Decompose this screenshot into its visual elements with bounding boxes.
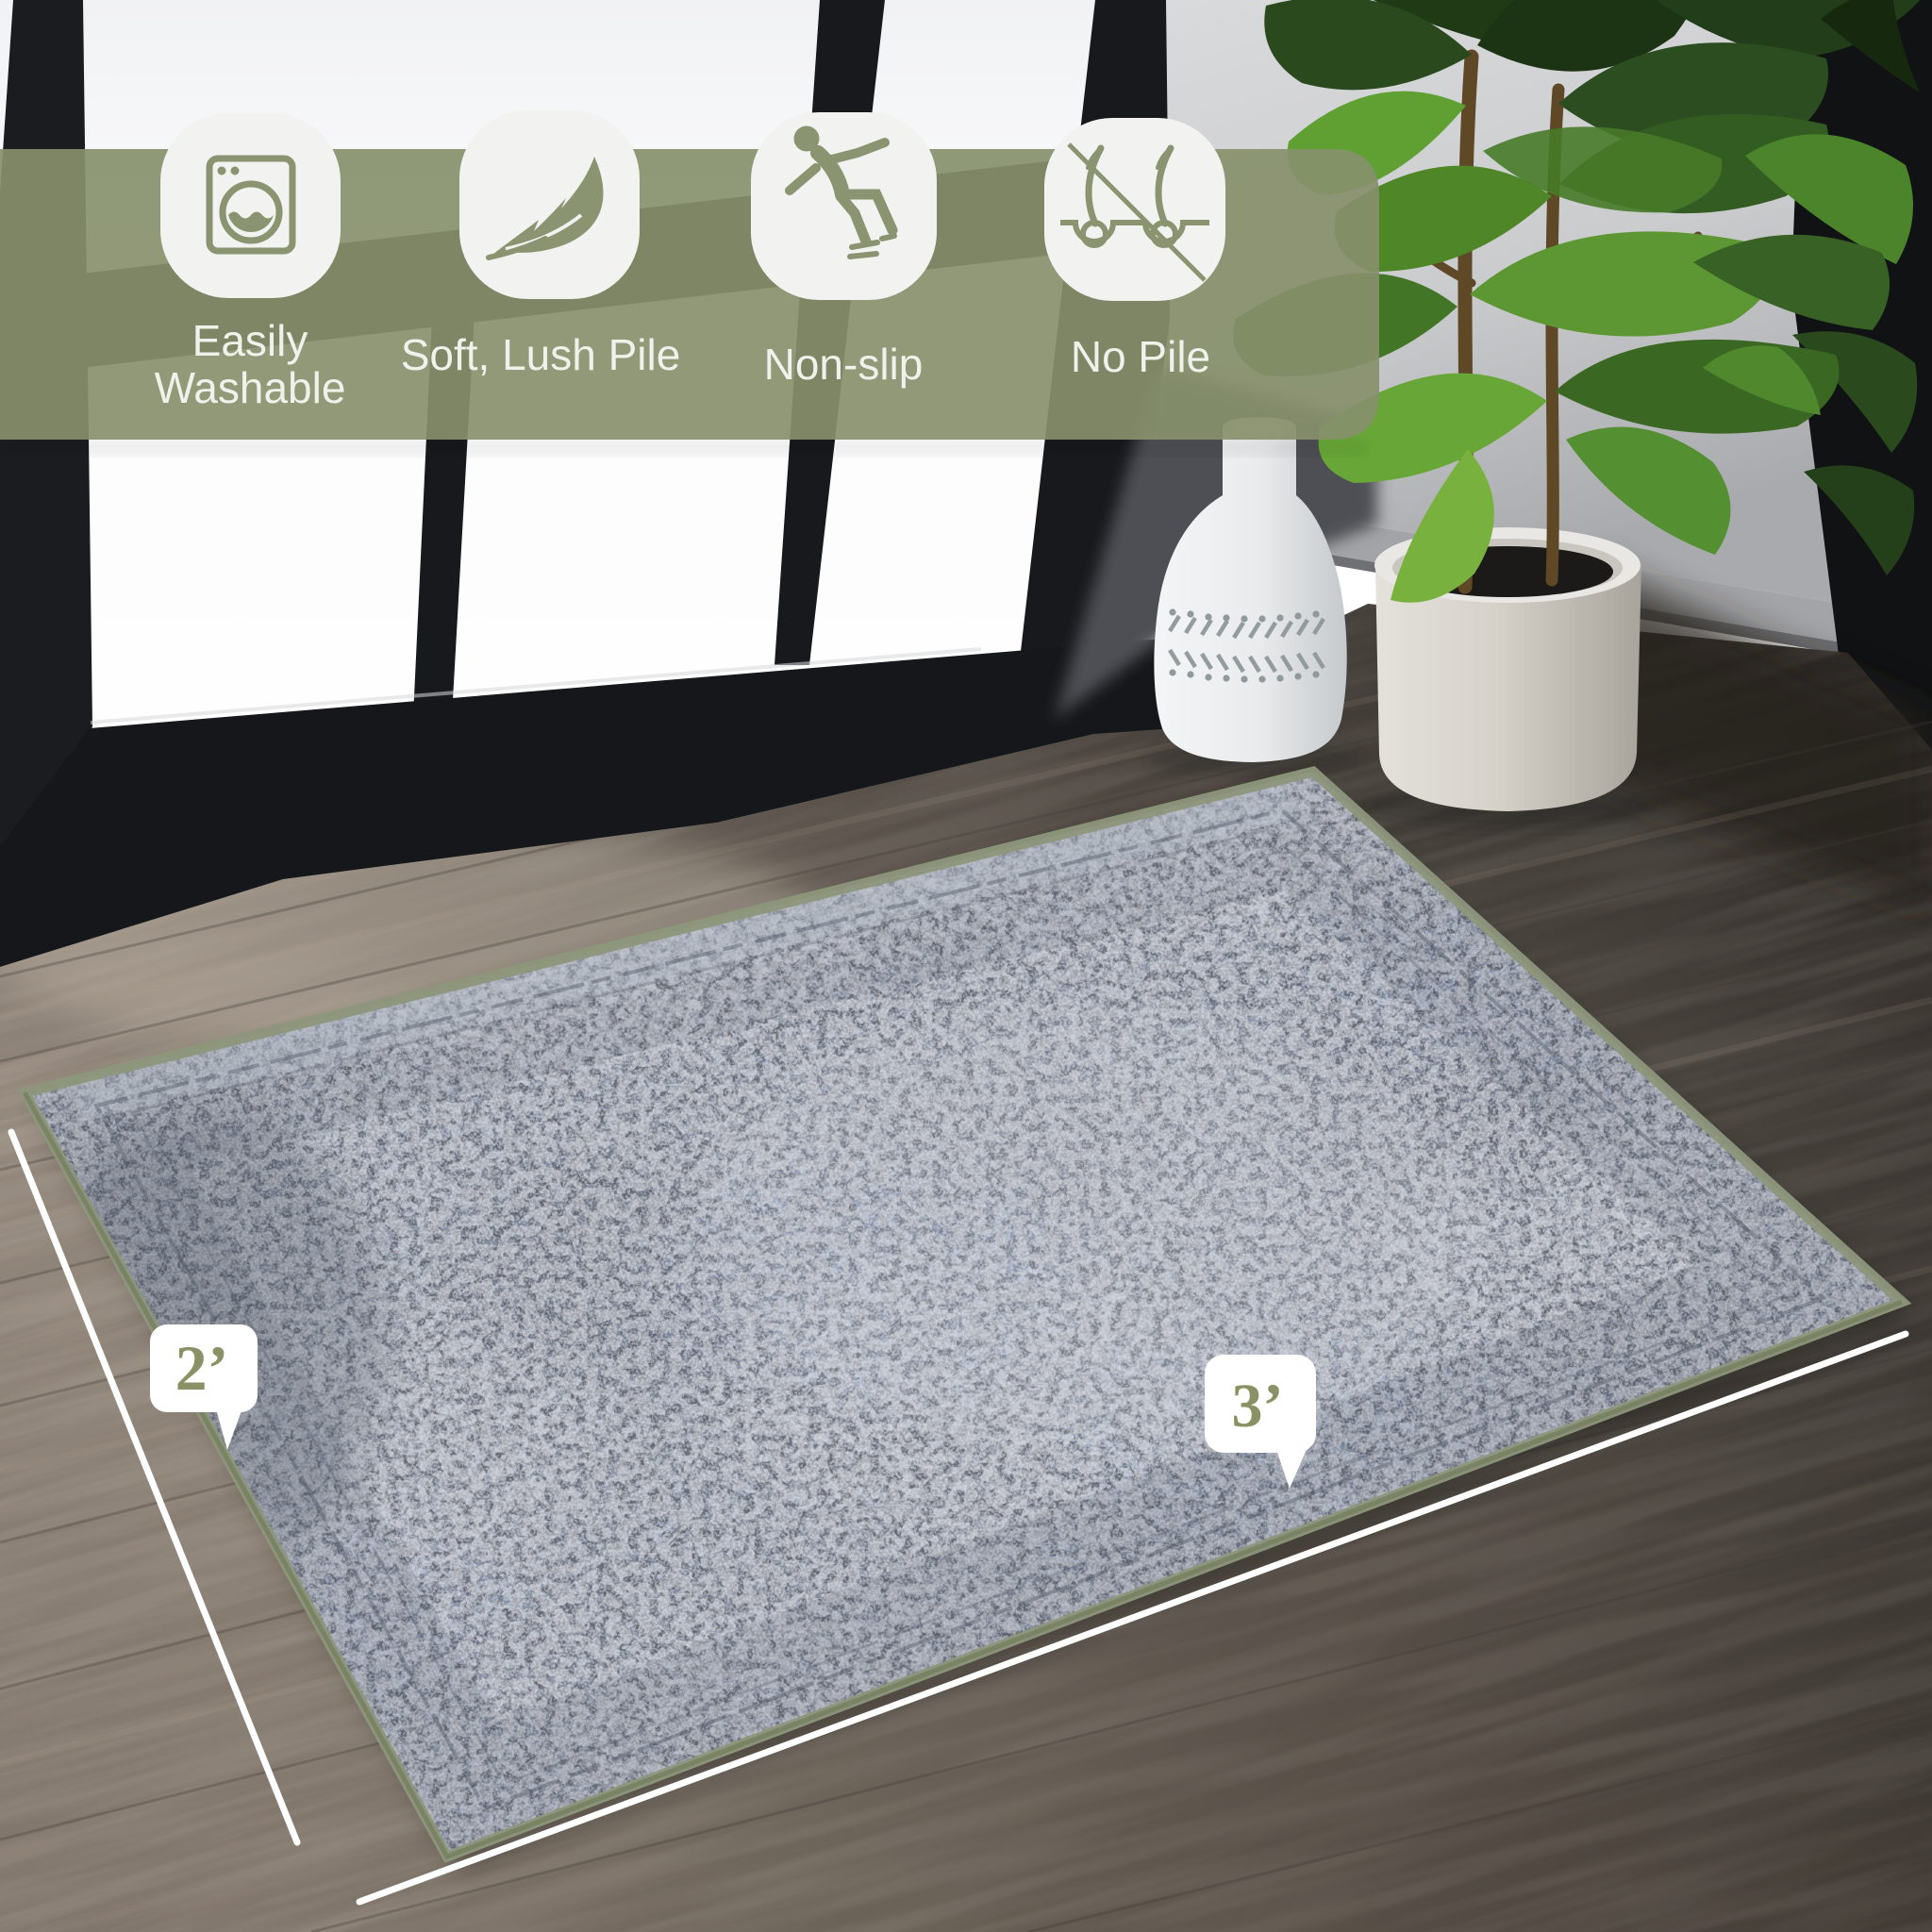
- svg-text:3’: 3’: [1232, 1372, 1284, 1441]
- svg-text:Washable: Washable: [155, 363, 346, 412]
- svg-text:Non-slip: Non-slip: [764, 340, 924, 389]
- svg-text:No Pile: No Pile: [1071, 332, 1210, 381]
- svg-text:Soft, Lush Pile: Soft, Lush Pile: [401, 330, 681, 379]
- svg-text:2’: 2’: [175, 1332, 229, 1404]
- svg-text:Easily: Easily: [192, 316, 308, 365]
